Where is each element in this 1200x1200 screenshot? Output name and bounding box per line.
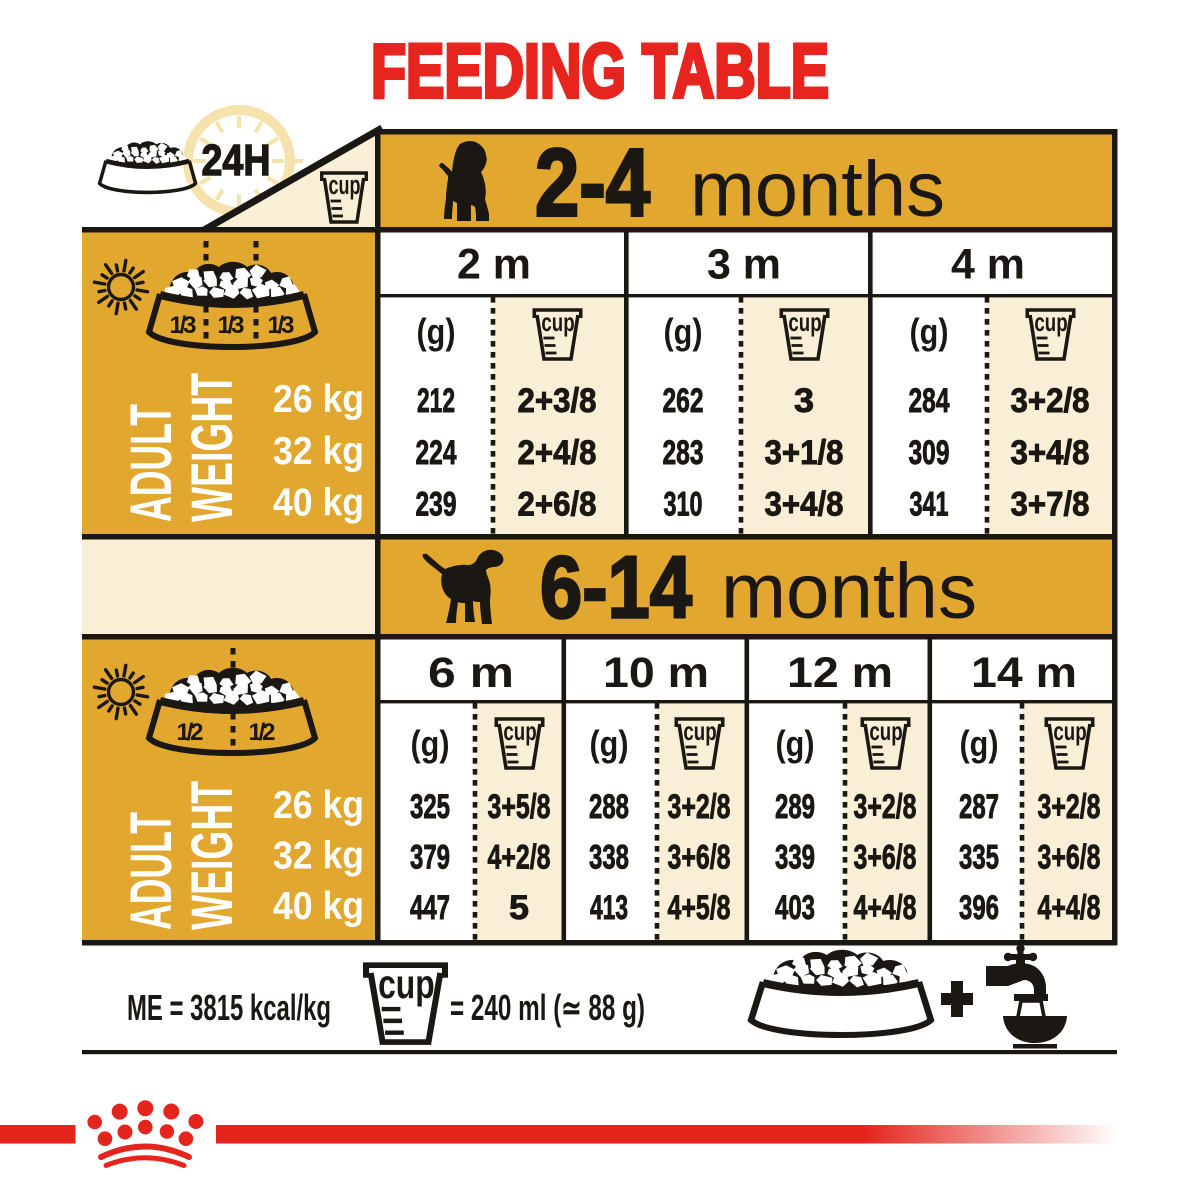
- svg-text:(g): (g): [664, 311, 703, 352]
- svg-text:(g): (g): [776, 723, 815, 764]
- svg-text:10 m: 10 m: [603, 649, 709, 697]
- svg-text:4+4/8: 4+4/8: [1038, 889, 1101, 927]
- svg-text:212: 212: [417, 382, 455, 420]
- svg-text:(g): (g): [590, 723, 629, 764]
- svg-text:413: 413: [590, 889, 628, 927]
- svg-text:2+3/8: 2+3/8: [518, 382, 597, 420]
- svg-text:ADULT: ADULT: [119, 404, 184, 522]
- svg-text:months: months: [721, 547, 977, 635]
- svg-text:239: 239: [416, 486, 457, 524]
- svg-text:224: 224: [416, 434, 457, 472]
- svg-text:32 kg: 32 kg: [273, 430, 364, 473]
- svg-text:4+5/8: 4+5/8: [668, 889, 731, 927]
- svg-text:1/3: 1/3: [170, 312, 197, 339]
- svg-text:3+6/8: 3+6/8: [668, 839, 731, 877]
- svg-text:3+6/8: 3+6/8: [854, 839, 917, 877]
- svg-text:6 m: 6 m: [428, 649, 514, 697]
- svg-text:WEIGHT: WEIGHT: [180, 373, 245, 522]
- svg-text:403: 403: [775, 889, 815, 927]
- svg-text:1/3: 1/3: [218, 312, 245, 339]
- svg-text:ADULT: ADULT: [119, 812, 184, 930]
- svg-text:ME = 3815 kcal/kg: ME = 3815 kcal/kg: [127, 987, 331, 1028]
- svg-text:= 240 ml (≃ 88 g): = 240 ml (≃ 88 g): [450, 987, 645, 1028]
- svg-text:3+2/8: 3+2/8: [668, 788, 731, 826]
- svg-text:310: 310: [664, 486, 703, 524]
- svg-text:3+2/8: 3+2/8: [1011, 382, 1090, 420]
- svg-text:325: 325: [410, 788, 450, 826]
- svg-text:3+6/8: 3+6/8: [1038, 839, 1101, 877]
- svg-text:335: 335: [959, 839, 999, 877]
- svg-text:289: 289: [775, 788, 815, 826]
- svg-text:283: 283: [663, 434, 704, 472]
- svg-text:(g): (g): [910, 311, 949, 352]
- svg-text:12 m: 12 m: [787, 649, 893, 697]
- svg-text:3+4/8: 3+4/8: [1011, 434, 1090, 472]
- svg-text:40 kg: 40 kg: [273, 885, 364, 928]
- svg-text:1/2: 1/2: [249, 719, 276, 746]
- svg-text:26 kg: 26 kg: [273, 784, 364, 827]
- svg-text:WEIGHT: WEIGHT: [180, 781, 245, 930]
- svg-text:284: 284: [909, 382, 950, 420]
- svg-text:3+7/8: 3+7/8: [1011, 486, 1090, 524]
- svg-text:14 m: 14 m: [971, 649, 1077, 697]
- svg-text:2 m: 2 m: [457, 241, 531, 289]
- svg-text:288: 288: [589, 788, 629, 826]
- svg-text:2+4/8: 2+4/8: [518, 434, 597, 472]
- svg-text:3+2/8: 3+2/8: [854, 788, 917, 826]
- svg-text:months: months: [690, 145, 945, 233]
- svg-text:341: 341: [910, 486, 949, 524]
- svg-text:4+4/8: 4+4/8: [854, 889, 917, 927]
- svg-text:40 kg: 40 kg: [273, 482, 364, 525]
- svg-text:287: 287: [959, 788, 999, 826]
- svg-text:262: 262: [663, 382, 704, 420]
- svg-text:3+4/8: 3+4/8: [765, 486, 844, 524]
- svg-text:338: 338: [589, 839, 629, 877]
- svg-text:3 m: 3 m: [707, 241, 781, 289]
- svg-text:4+2/8: 4+2/8: [488, 839, 551, 877]
- svg-text:(g): (g): [417, 311, 456, 352]
- svg-text:24H: 24H: [202, 136, 271, 185]
- svg-text:339: 339: [775, 839, 815, 877]
- svg-text:379: 379: [410, 839, 450, 877]
- svg-text:26 kg: 26 kg: [273, 378, 364, 421]
- svg-text:3: 3: [794, 382, 814, 420]
- svg-text:2-4: 2-4: [535, 130, 650, 237]
- svg-text:32 kg: 32 kg: [273, 835, 364, 878]
- svg-text:3+5/8: 3+5/8: [488, 788, 551, 826]
- svg-text:447: 447: [410, 889, 450, 927]
- svg-text:1/3: 1/3: [268, 312, 295, 339]
- svg-text:309: 309: [909, 434, 950, 472]
- svg-text:FEEDING TABLE: FEEDING TABLE: [371, 29, 829, 114]
- svg-text:3+2/8: 3+2/8: [1038, 788, 1101, 826]
- svg-text:4 m: 4 m: [951, 241, 1025, 289]
- svg-text:5: 5: [509, 889, 529, 927]
- svg-text:6-14: 6-14: [540, 538, 692, 637]
- svg-text:396: 396: [959, 889, 999, 927]
- svg-text:1/2: 1/2: [177, 719, 204, 746]
- svg-text:(g): (g): [411, 723, 450, 764]
- svg-text:2+6/8: 2+6/8: [518, 486, 597, 524]
- svg-text:3+1/8: 3+1/8: [765, 434, 844, 472]
- svg-text:(g): (g): [960, 723, 999, 764]
